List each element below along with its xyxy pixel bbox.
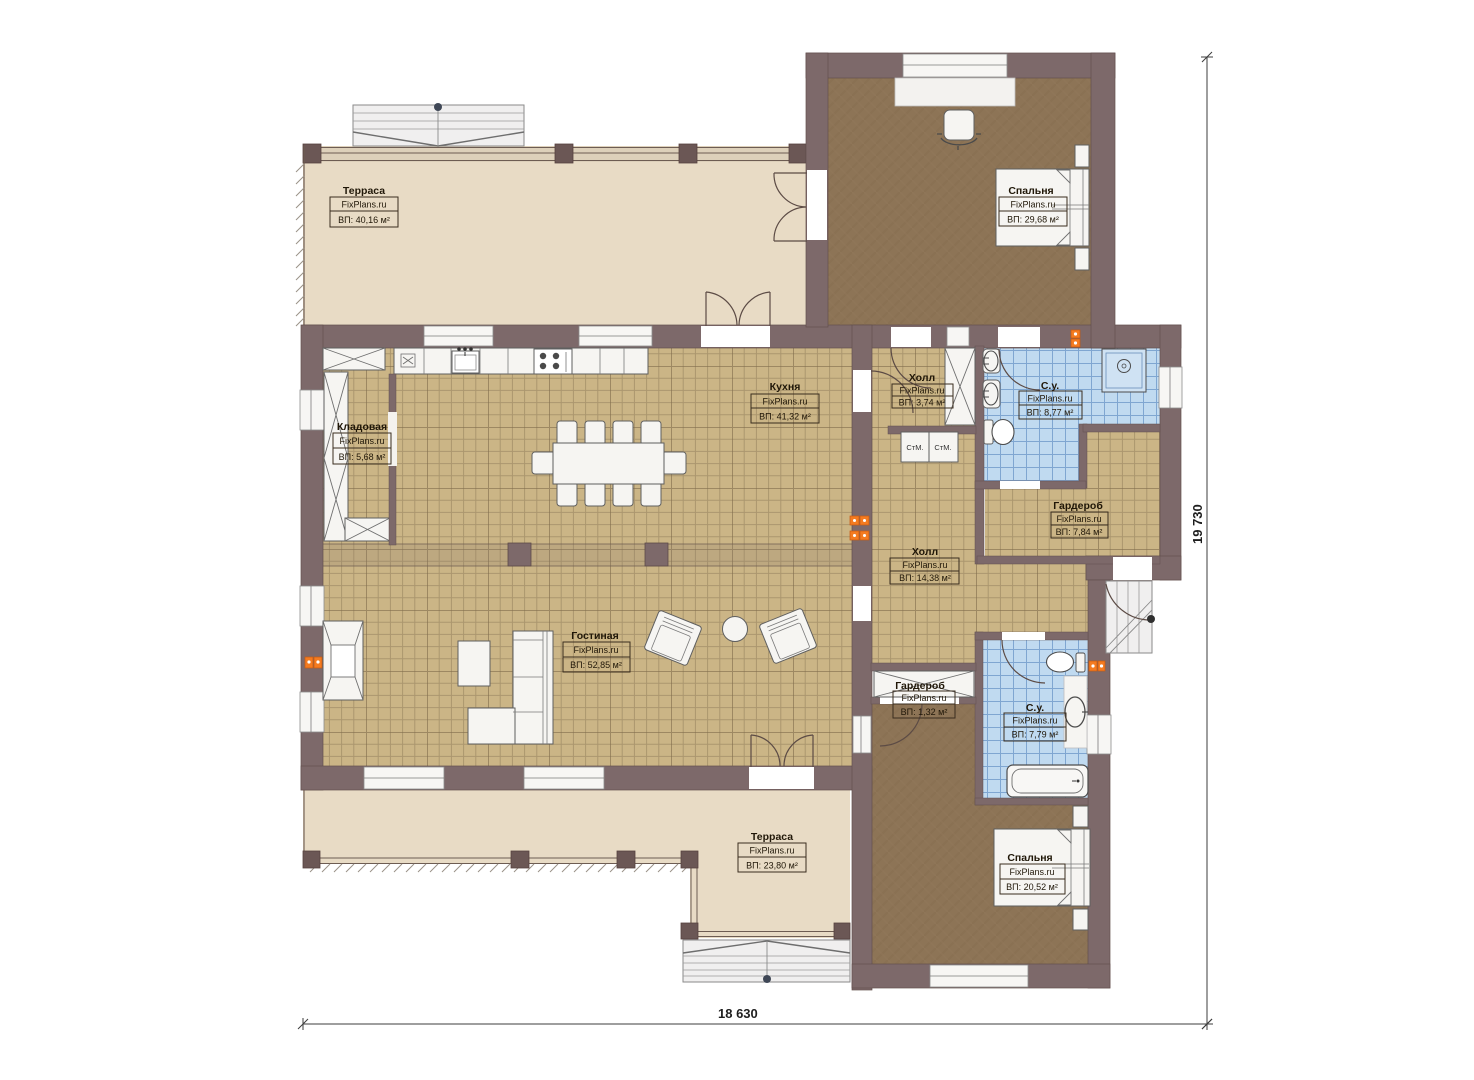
- svg-text:FixPlans.ru: FixPlans.ru: [899, 386, 944, 396]
- svg-text:ВП: 7,79 м²: ВП: 7,79 м²: [1012, 730, 1059, 740]
- svg-text:Кухня: Кухня: [770, 381, 801, 393]
- svg-text:FixPlans.ru: FixPlans.ru: [339, 436, 384, 446]
- svg-text:FixPlans.ru: FixPlans.ru: [762, 397, 807, 407]
- svg-text:19 730: 19 730: [1190, 504, 1205, 544]
- svg-text:Холл: Холл: [909, 372, 935, 384]
- svg-text:ВП: 14,38 м²: ВП: 14,38 м²: [899, 573, 951, 583]
- svg-text:FixPlans.ru: FixPlans.ru: [1009, 867, 1054, 877]
- svg-text:FixPlans.ru: FixPlans.ru: [749, 846, 794, 856]
- svg-text:Холл: Холл: [912, 546, 938, 558]
- svg-text:Терраса: Терраса: [343, 185, 385, 197]
- svg-text:ВП: 29,68 м²: ВП: 29,68 м²: [1007, 215, 1059, 225]
- svg-text:FixPlans.ru: FixPlans.ru: [1027, 394, 1072, 404]
- svg-text:СтМ.: СтМ.: [906, 443, 923, 452]
- svg-text:FixPlans.ru: FixPlans.ru: [341, 200, 386, 210]
- svg-text:ВП: 5,68 м²: ВП: 5,68 м²: [339, 452, 386, 462]
- svg-text:Спальня: Спальня: [1008, 185, 1053, 197]
- svg-text:Гардероб: Гардероб: [1053, 500, 1103, 512]
- svg-text:ВП: 20,52 м²: ВП: 20,52 м²: [1006, 882, 1058, 892]
- svg-text:18 630: 18 630: [718, 1006, 758, 1021]
- svg-text:ВП: 52,85 м²: ВП: 52,85 м²: [570, 660, 622, 670]
- svg-text:Кладовая: Кладовая: [337, 421, 387, 433]
- svg-text:Терраса: Терраса: [751, 831, 793, 843]
- svg-text:ВП: 1,32 м²: ВП: 1,32 м²: [901, 707, 948, 717]
- svg-text:ВП: 3,74 м²: ВП: 3,74 м²: [899, 398, 946, 408]
- svg-text:FixPlans.ru: FixPlans.ru: [1012, 716, 1057, 726]
- svg-text:FixPlans.ru: FixPlans.ru: [902, 560, 947, 570]
- svg-text:FixPlans.ru: FixPlans.ru: [901, 693, 946, 703]
- svg-text:СтМ.: СтМ.: [934, 443, 951, 452]
- svg-text:Спальня: Спальня: [1007, 852, 1052, 864]
- svg-text:ВП: 7,84 м²: ВП: 7,84 м²: [1056, 527, 1103, 537]
- svg-text:FixPlans.ru: FixPlans.ru: [573, 645, 618, 655]
- svg-text:FixPlans.ru: FixPlans.ru: [1056, 514, 1101, 524]
- svg-text:ВП: 23,80 м²: ВП: 23,80 м²: [746, 861, 798, 871]
- svg-text:С.у.: С.у.: [1026, 702, 1044, 714]
- svg-text:ВП: 40,16 м²: ВП: 40,16 м²: [338, 215, 390, 225]
- svg-text:С.у.: С.у.: [1041, 380, 1059, 392]
- svg-text:Гостиная: Гостиная: [571, 630, 618, 642]
- svg-text:Гардероб: Гардероб: [895, 680, 945, 692]
- svg-text:ВП: 41,32 м²: ВП: 41,32 м²: [759, 412, 811, 422]
- svg-text:ВП: 8,77 м²: ВП: 8,77 м²: [1027, 408, 1074, 418]
- svg-text:FixPlans.ru: FixPlans.ru: [1010, 200, 1055, 210]
